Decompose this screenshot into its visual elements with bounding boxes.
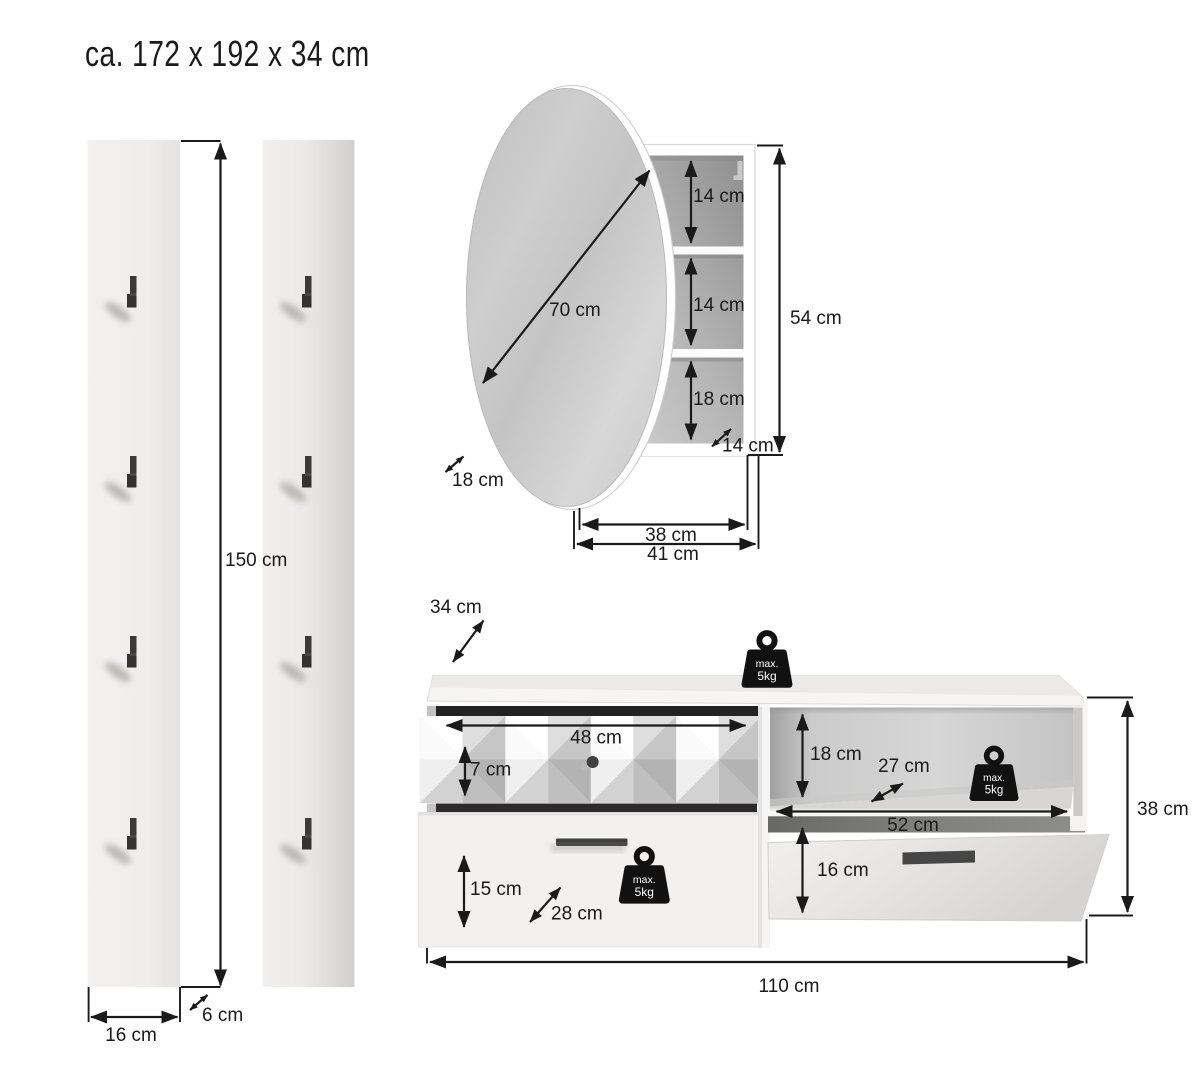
svg-text:70 cm: 70 cm xyxy=(549,300,601,321)
svg-text:14 cm: 14 cm xyxy=(693,186,745,207)
svg-text:52 cm: 52 cm xyxy=(887,815,939,836)
svg-text:38 cm: 38 cm xyxy=(1137,799,1189,820)
svg-text:6 cm: 6 cm xyxy=(202,1005,243,1026)
svg-text:ca. 172 x 192 x 34 cm: ca. 172 x 192 x 34 cm xyxy=(85,34,370,74)
svg-text:16 cm: 16 cm xyxy=(817,860,869,881)
svg-text:14 cm: 14 cm xyxy=(693,295,745,316)
svg-text:14 cm: 14 cm xyxy=(722,436,774,457)
svg-text:110 cm: 110 cm xyxy=(759,976,820,997)
svg-text:18 cm: 18 cm xyxy=(452,470,504,491)
svg-text:18 cm: 18 cm xyxy=(810,744,862,765)
svg-text:28 cm: 28 cm xyxy=(551,904,603,925)
svg-text:34 cm: 34 cm xyxy=(430,597,482,618)
svg-text:18 cm: 18 cm xyxy=(693,389,745,410)
svg-text:7 cm: 7 cm xyxy=(470,760,511,781)
svg-text:150 cm: 150 cm xyxy=(225,550,287,571)
svg-text:48 cm: 48 cm xyxy=(570,728,622,749)
svg-text:15 cm: 15 cm xyxy=(470,879,522,900)
svg-text:27 cm: 27 cm xyxy=(878,756,930,777)
svg-text:54 cm: 54 cm xyxy=(790,308,842,329)
svg-text:16 cm: 16 cm xyxy=(105,1025,157,1046)
svg-text:41 cm: 41 cm xyxy=(647,544,699,565)
svg-text:38 cm: 38 cm xyxy=(645,525,697,546)
